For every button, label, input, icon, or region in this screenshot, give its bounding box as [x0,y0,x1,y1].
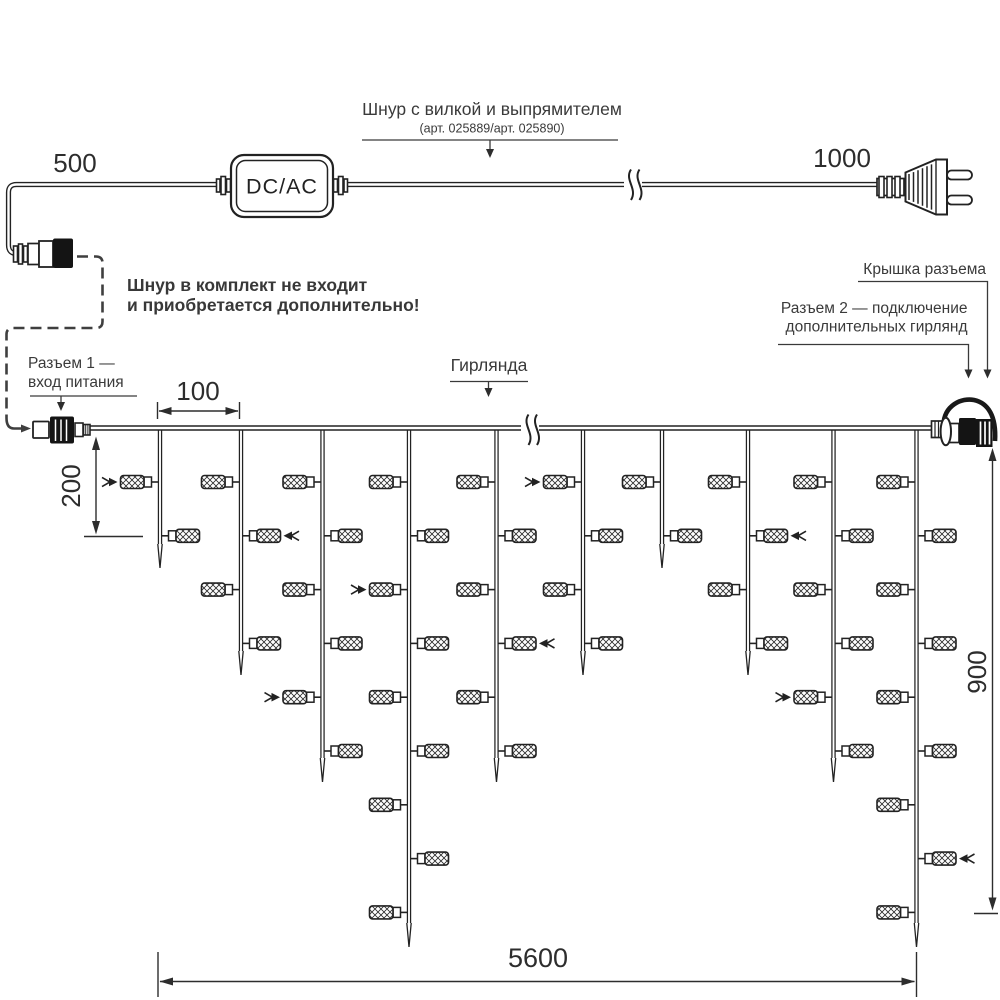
lamp-bulb [794,476,818,489]
lamp-cap [757,638,765,648]
lamp-bulb [121,476,145,489]
icicle-lamp [918,637,957,650]
icicle-lamp [663,529,702,542]
garland-break-icon [521,415,539,446]
garland-drops [102,428,975,947]
lamp-cap [842,531,850,541]
garland-drop-9 [776,428,874,782]
garland-connector-right [932,400,996,447]
drop-tip [914,923,918,947]
lamp-cap [481,585,489,595]
icicle-lamp [161,529,200,542]
lamp-bulb [877,476,901,489]
note-text-line1: Шнур в комплект не входит [127,275,368,295]
lamp-bulb [257,637,281,650]
lamp-cap [481,477,489,487]
lamp-cap [144,477,152,487]
lamp-bulb [764,637,788,650]
icicle-lamp [202,583,241,596]
lamp-cap [418,531,426,541]
lamp-bulb [370,691,394,704]
lamp-bulb [425,852,449,865]
icicle-lamp [324,529,363,542]
lamp-bulb [370,583,394,596]
garland-drop-7 [623,428,702,568]
icicle-lamp [324,637,363,650]
connector1-label-line2: вход питания [28,374,124,391]
lamp-cap [732,477,740,487]
icicle-lamp [918,745,957,758]
garland-drop-8 [709,428,807,675]
connector2-label-line1: Разъем 2 — подключение [781,300,968,317]
lamp-cap [592,531,600,541]
lamp-cap [925,746,933,756]
dim-200-label: 200 [56,464,86,507]
dim-100-label: 100 [176,376,219,406]
lamp-cap [418,854,426,864]
icicle-lamp [457,476,496,489]
plug-prong [947,171,972,180]
power-plug-icon [877,160,972,215]
lamp-bulb [877,798,901,811]
lamp-bulb [370,476,394,489]
lamp-bulb [764,529,788,542]
lamp-cap [393,585,401,595]
lamp-bulb [283,583,307,596]
garland-drop-3 [265,428,363,782]
icicle-lamp [749,637,788,650]
lamp-bulb [425,745,449,758]
icicle-lamp [835,745,874,758]
icicle-lamp [457,583,496,596]
lamp-cap [567,477,575,487]
cord-1000-label: 1000 [813,143,871,173]
dcac-box: DC/AC [217,155,348,217]
cord-500-label: 500 [53,148,96,178]
icicle-lamp [794,476,833,489]
lamp-bulb [933,852,957,865]
lamp-cap [250,638,258,648]
lamp-bulb [370,798,394,811]
lamp-cap [418,746,426,756]
lamp-bulb [425,637,449,650]
diagram-canvas: DC/AC 500 1000 Шнур с вилкой и выпрямите… [0,0,1000,1000]
icicle-lamp [370,906,409,919]
lamp-cap [757,531,765,541]
icicle-lamp [498,529,537,542]
dim-5600-label: 5600 [508,943,568,973]
lamp-cap [393,800,401,810]
lamp-cap [818,477,826,487]
lamp-cap [307,692,315,702]
lamp-bulb [709,476,733,489]
dashed-route [7,257,103,433]
lamp-bulb [877,691,901,704]
lamp-cap [505,531,513,541]
icicle-lamp [749,529,788,542]
icicle-lamp [410,637,449,650]
icicle-lamp [877,906,916,919]
lamp-bulb [933,637,957,650]
lamp-bulb [283,476,307,489]
lamp-bulb [339,637,363,650]
icicle-lamp [202,476,241,489]
garland-label-leader [450,382,528,398]
lamp-cap [901,692,909,702]
flash-arrow-icon [351,585,367,594]
icicle-lamp [370,798,409,811]
dim-900-label: 900 [962,650,992,693]
lamp-bulb [709,583,733,596]
connector1-label-line1: Разъем 1 — [28,355,115,372]
lamp-bulb [544,583,568,596]
icicle-lamp [242,529,281,542]
drop-tip [158,544,162,568]
lamp-bulb [370,906,394,919]
cord-connector-cap [53,239,73,269]
icicle-lamp [918,852,957,865]
lamp-bulb [425,529,449,542]
lamp-cap [646,477,654,487]
flash-arrow-icon [265,693,281,702]
drop-tip [660,544,664,568]
icicle-lamp [410,529,449,542]
garland-drop-1 [102,428,200,568]
icicle-lamp [370,691,409,704]
flash-arrow-icon [525,477,541,486]
garland-label: Гирлянда [451,355,528,375]
connector2-label-line2: дополнительных гирлянд [786,319,968,336]
icicle-lamp [242,637,281,650]
icicle-lamp [877,583,916,596]
lamp-bulb [457,691,481,704]
lamp-cap [505,638,513,648]
drop-tip [239,651,243,675]
icicle-lamp [544,476,583,489]
cord-break-icon [624,170,642,201]
icicle-lamp [498,745,537,758]
drop-tip [746,651,750,675]
icicle-lamp [283,691,322,704]
icicle-lamp [121,476,160,489]
lamp-bulb [457,476,481,489]
lamp-bulb [457,583,481,596]
lamp-cap [592,638,600,648]
connector2-leader [778,345,973,379]
lamp-bulb [283,691,307,704]
lamp-bulb [623,476,647,489]
icicle-lamp [835,529,874,542]
lamp-cap [418,638,426,648]
lamp-cap [842,746,850,756]
connector1-leader [30,396,137,411]
lamp-bulb [678,529,702,542]
lamp-cap [901,907,909,917]
lamp-cap [901,585,909,595]
drop-tip [581,651,585,675]
lamp-cap [925,531,933,541]
lamp-cap [393,477,401,487]
icicle-lamp [623,476,662,489]
flash-arrow-icon [539,639,555,648]
garland-drop-5 [457,428,555,782]
lamp-bulb [513,637,537,650]
lamp-cap [331,638,339,648]
icicle-lamp [584,529,623,542]
lamp-cap [481,692,489,702]
cord-article: (арт. 025889/арт. 025890) [419,122,564,136]
icicle-lamp [370,583,409,596]
garland-drop-10 [877,428,975,947]
lamp-bulb [339,529,363,542]
icicle-lamp [794,691,833,704]
flash-arrow-icon [959,854,975,863]
lamp-cap [818,692,826,702]
lamp-cap [393,692,401,702]
icicle-lamp [370,476,409,489]
lamp-bulb [257,529,281,542]
icicle-lamp [835,637,874,650]
lamp-cap [925,854,933,864]
dcac-label: DC/AC [246,175,318,199]
lamp-cap [842,638,850,648]
lamp-cap [307,477,315,487]
icicle-lamp [584,637,623,650]
lamp-cap [250,531,258,541]
icicle-lamp [709,583,748,596]
lamp-bulb [933,529,957,542]
garland-drop-6 [525,428,623,675]
lamp-bulb [339,745,363,758]
lamp-cap [925,638,933,648]
lamp-bulb [599,637,623,650]
lamp-cap [393,907,401,917]
icicle-lamp [877,691,916,704]
lamp-bulb [513,529,537,542]
lamp-bulb [176,529,200,542]
dim-5600: 5600 [158,943,917,997]
garland-wire [88,415,934,446]
flash-arrow-icon [284,531,300,540]
icicle-lamp [410,745,449,758]
note-text-line2: и приобретается дополнительно! [127,295,420,315]
drop-tip [407,923,411,947]
lamp-bulb [850,529,874,542]
lamp-bulb [513,745,537,758]
lamp-cap [331,746,339,756]
lamp-bulb [794,691,818,704]
icicle-lamp [918,529,957,542]
lamp-bulb [202,583,226,596]
power-cord-assembly: DC/AC 500 1000 Шнур с вилкой и выпрямите… [7,99,973,433]
lamp-bulb [544,476,568,489]
flash-arrow-icon [776,693,792,702]
lamp-cap [818,585,826,595]
flash-arrow-icon [791,531,807,540]
icicle-lamp [410,852,449,865]
lamp-cap [732,585,740,595]
icicle-lamp [324,745,363,758]
dim-100: 100 [158,376,240,419]
garland-diagram: DC/AC 500 1000 Шнур с вилкой и выпрямите… [0,0,1000,1000]
lamp-bulb [933,745,957,758]
lamp-cap [901,477,909,487]
lamp-cap [567,585,575,595]
lamp-bulb [794,583,818,596]
plug-prong [947,196,972,205]
lamp-bulb [202,476,226,489]
lamp-cap [505,746,513,756]
icicle-lamp [283,583,322,596]
drop-tip [320,758,324,782]
drop-tip [494,758,498,782]
lamp-cap [307,585,315,595]
drop-tip [831,758,835,782]
lamp-bulb [877,906,901,919]
lamp-bulb [850,637,874,650]
garland-drop-4 [351,428,449,947]
dashed-arrow-icon [21,425,31,433]
lamp-bulb [850,745,874,758]
icicle-lamp [283,476,322,489]
lamp-cap [169,531,177,541]
garland-drop-2 [202,428,300,675]
lamp-bulb [877,583,901,596]
lamp-cap [225,585,233,595]
garland-connector-left [33,417,90,444]
icicle-lamp [709,476,748,489]
icicle-lamp [877,476,916,489]
icicle-lamp [877,798,916,811]
dim-900: 900 [962,448,998,914]
lamp-bulb [599,529,623,542]
flash-arrow-icon [102,477,118,486]
cord-title: Шнур с вилкой и выпрямителем [362,99,622,119]
icicle-lamp [498,637,537,650]
cord-title-leader [362,140,618,158]
lamp-cap [671,531,679,541]
icicle-lamp [794,583,833,596]
cap-label: Крышка разъема [863,261,986,278]
icicle-lamp [457,691,496,704]
lamp-cap [901,800,909,810]
lamp-cap [331,531,339,541]
icicle-lamp [544,583,583,596]
lamp-cap [225,477,233,487]
cord-connector [14,239,74,269]
